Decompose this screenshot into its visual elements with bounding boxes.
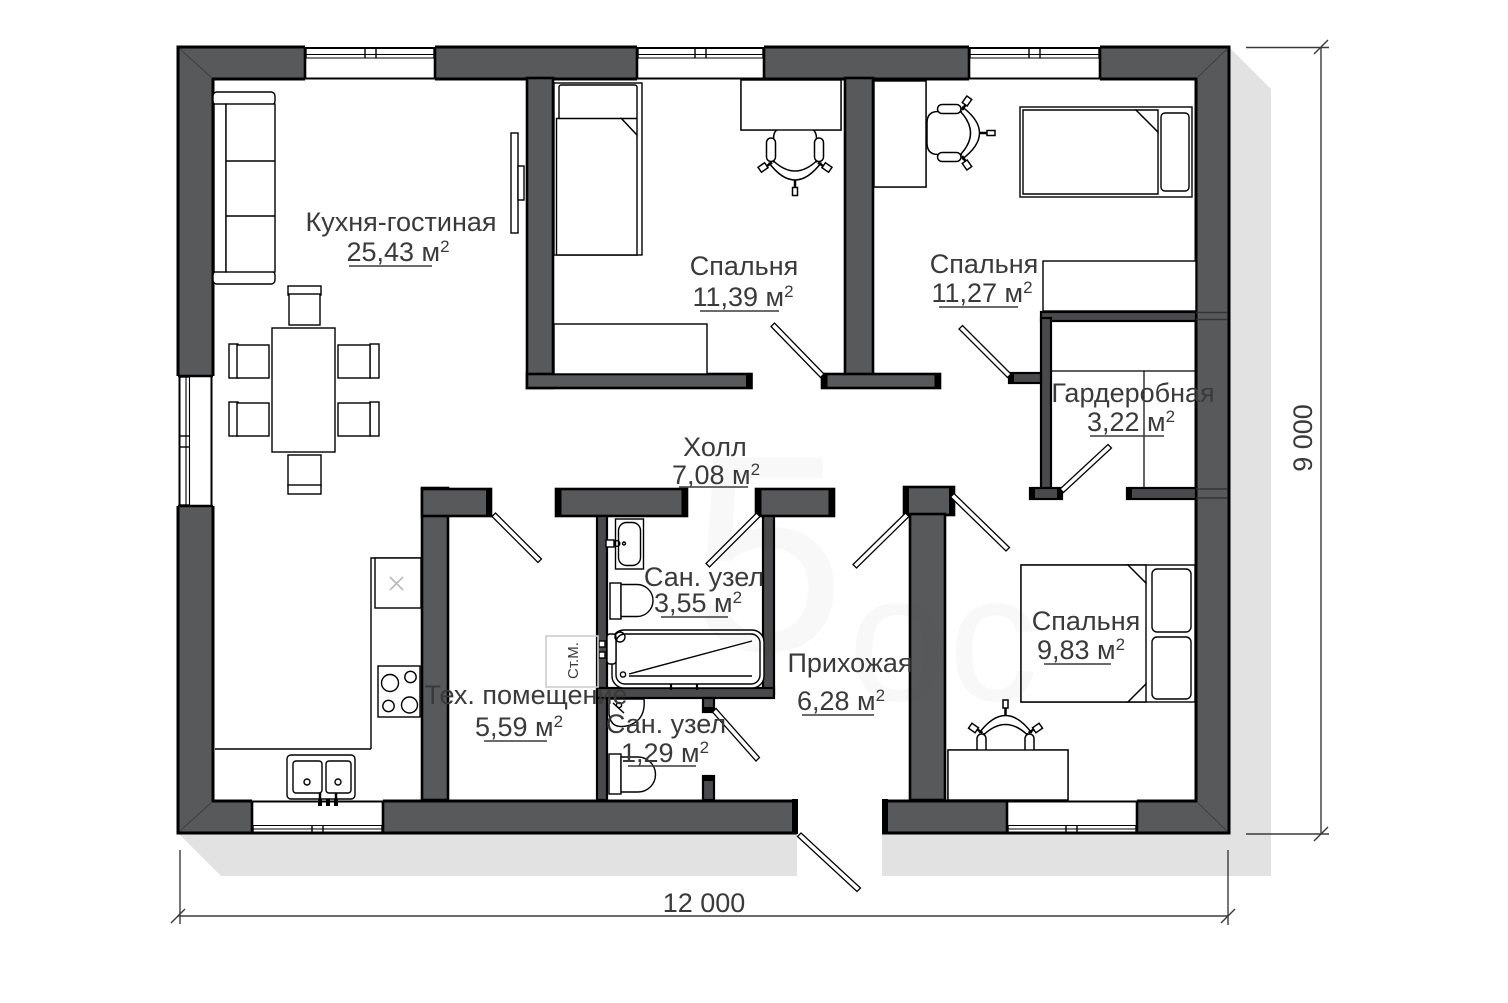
svg-text:1,29 м2: 1,29 м2 [621, 738, 709, 768]
svg-text:11,39 м2: 11,39 м2 [692, 282, 793, 312]
svg-text:Спальня: Спальня [690, 251, 799, 281]
svg-text:Спальня: Спальня [930, 249, 1039, 279]
svg-text:11,27 м2: 11,27 м2 [931, 278, 1032, 308]
svg-text:Кухня-гостиная: Кухня-гостиная [305, 207, 496, 237]
svg-text:12 000: 12 000 [663, 888, 746, 918]
svg-text:Тех. помещение: Тех. помещение [424, 680, 627, 710]
svg-text:7,08 м2: 7,08 м2 [672, 460, 760, 490]
svg-text:6,28 м2: 6,28 м2 [797, 686, 885, 716]
svg-text:Холл: Холл [683, 432, 747, 462]
svg-text:9,83 м2: 9,83 м2 [1037, 635, 1125, 665]
svg-text:3,22 м2: 3,22 м2 [1087, 407, 1175, 437]
svg-text:Ст.М.: Ст.М. [565, 642, 582, 679]
svg-text:Спальня: Спальня [1032, 606, 1141, 636]
svg-text:ос: ос [848, 538, 1038, 739]
svg-text:3,55 м2: 3,55 м2 [654, 588, 742, 618]
svg-text:9 000: 9 000 [1288, 404, 1318, 472]
svg-text:Сан. узел: Сан. узел [606, 709, 726, 739]
svg-text:Гардеробная: Гардеробная [1051, 378, 1214, 408]
svg-text:5,59 м2: 5,59 м2 [475, 712, 563, 742]
svg-text:25,43 м2: 25,43 м2 [346, 237, 449, 267]
svg-text:Прихожая: Прихожая [787, 648, 912, 678]
